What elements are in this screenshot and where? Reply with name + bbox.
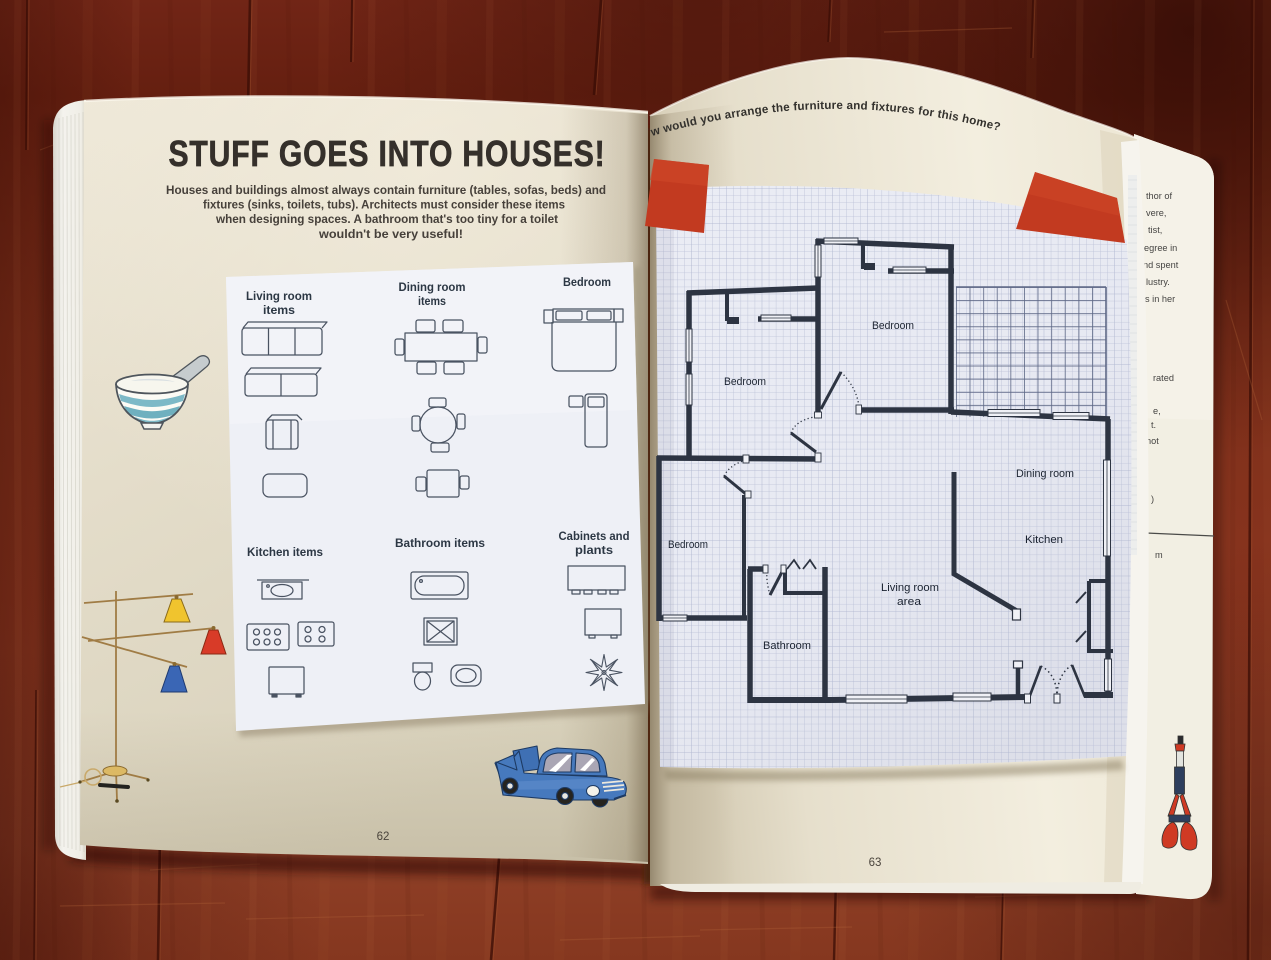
svg-text:63: 63	[869, 857, 882, 869]
svg-text:tist,: tist,	[1148, 225, 1162, 235]
svg-text:Dining room: Dining room	[399, 282, 466, 294]
svg-text:62: 62	[377, 831, 390, 843]
svg-text:lustry.: lustry.	[1146, 277, 1170, 287]
svg-text:fixtures (sinks, toilets, tubs: fixtures (sinks, toilets, tubs). Archite…	[203, 198, 565, 212]
svg-text:m: m	[1155, 550, 1163, 560]
svg-text:t.: t.	[1151, 420, 1156, 430]
svg-text:wouldn't be very useful!: wouldn't be very useful!	[318, 227, 463, 241]
svg-text:s in her: s in her	[1145, 294, 1175, 304]
svg-text:e,: e,	[1153, 406, 1161, 416]
svg-text:STUFF GOES INTO HOUSES!: STUFF GOES INTO HOUSES!	[169, 133, 606, 174]
svg-text:Cabinets and: Cabinets and	[559, 531, 630, 543]
svg-text:Kitchen: Kitchen	[1025, 534, 1063, 546]
svg-text:items: items	[263, 305, 295, 317]
svg-text:Dining room: Dining room	[1016, 468, 1074, 480]
svg-text:legree in: legree in	[1142, 243, 1177, 253]
svg-text:Houses and buildings almost al: Houses and buildings almost always conta…	[166, 183, 606, 197]
svg-text:Kitchen items: Kitchen items	[247, 547, 323, 559]
svg-text:): )	[1151, 494, 1154, 504]
svg-text:Bedroom: Bedroom	[563, 277, 611, 289]
svg-text:Bedroom: Bedroom	[668, 539, 708, 551]
svg-text:Bathroom items: Bathroom items	[395, 538, 485, 550]
svg-text:thor of: thor of	[1146, 191, 1172, 201]
svg-text:Living room: Living room	[246, 291, 312, 303]
svg-text:Bathroom: Bathroom	[763, 640, 811, 652]
svg-text:items: items	[418, 296, 446, 308]
svg-text:Living room: Living room	[881, 582, 939, 594]
svg-text:Bedroom: Bedroom	[872, 320, 914, 332]
svg-text:plants: plants	[575, 545, 613, 557]
svg-text:rated: rated	[1153, 373, 1174, 383]
svg-text:vere,: vere,	[1146, 208, 1166, 218]
svg-text:area: area	[897, 596, 922, 608]
svg-text:Bedroom: Bedroom	[724, 376, 766, 388]
svg-text:when designing spaces. A bathr: when designing spaces. A bathroom that's…	[215, 212, 558, 226]
svg-text:nd spent: nd spent	[1143, 260, 1179, 270]
